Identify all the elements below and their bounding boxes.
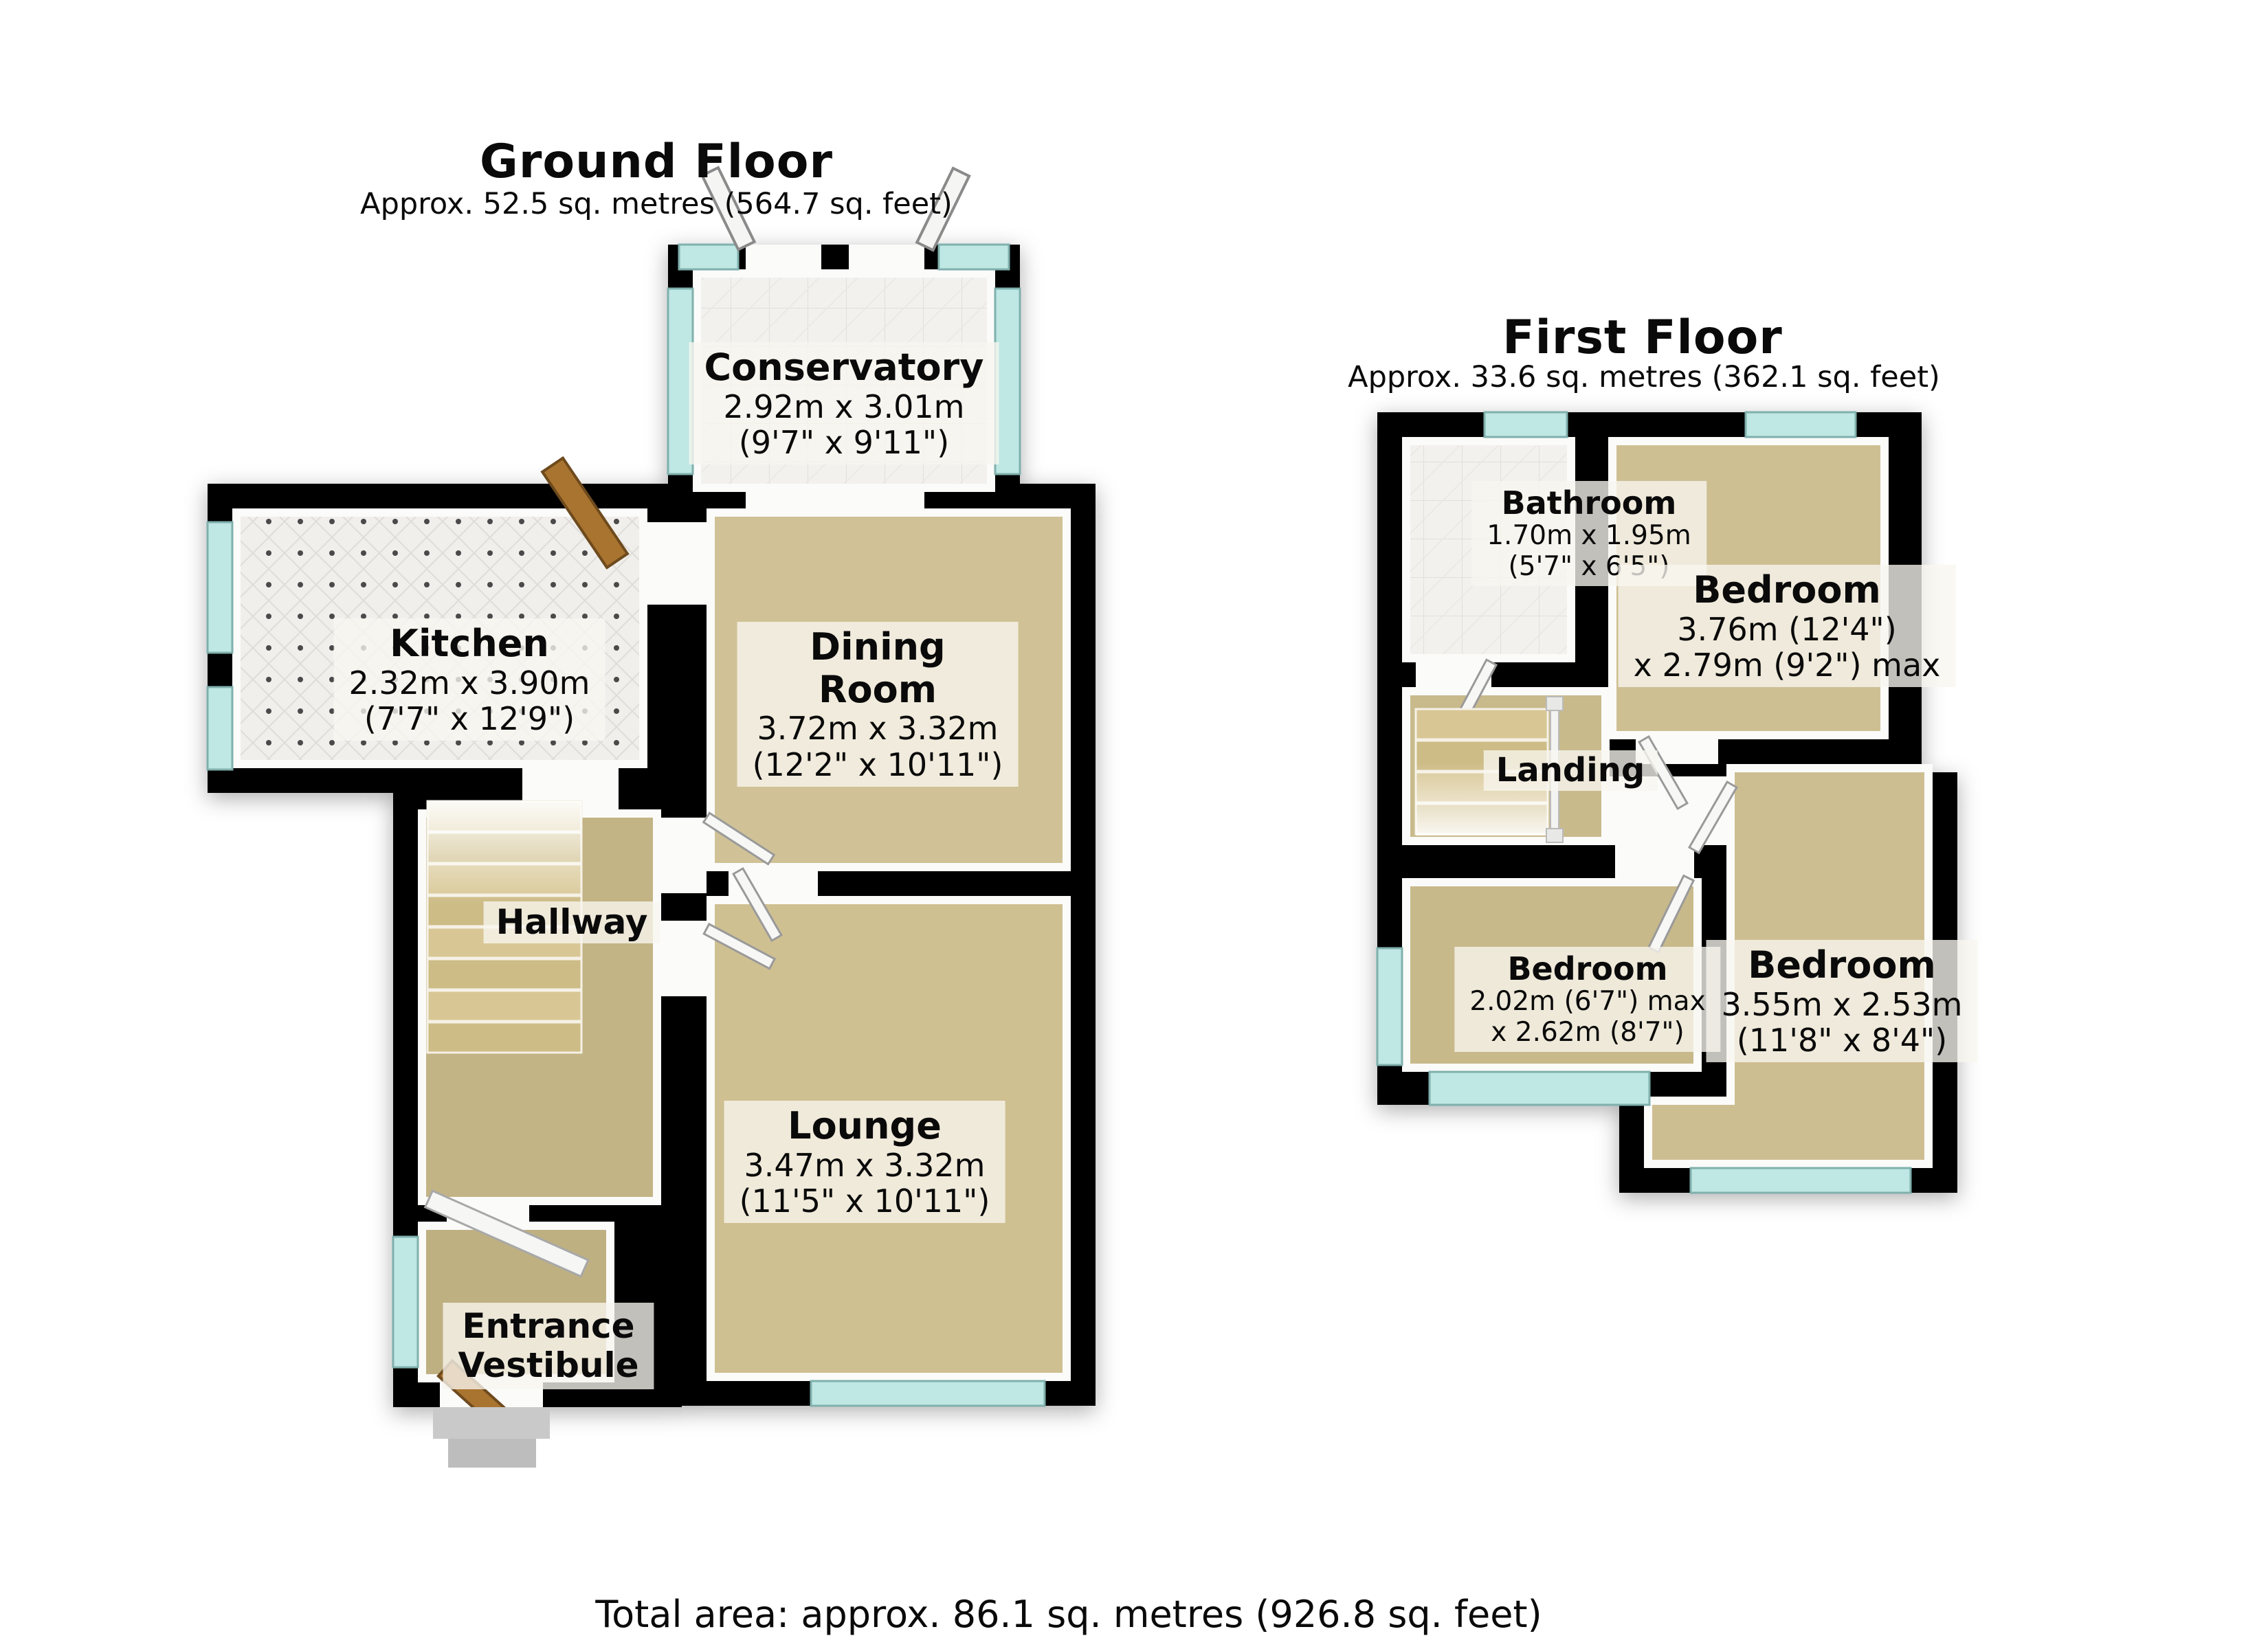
lounge-dims-metric: 3.47m x 3.32m <box>740 1147 990 1183</box>
kitchen-label: Kitchen 2.32m x 3.90m (7'7" x 12'9") <box>334 618 605 741</box>
ground-floor-title: Ground Floor <box>480 135 833 189</box>
entrance-vestibule-name-line2: Vestibule <box>458 1346 638 1385</box>
kitchen-window-lower <box>208 687 232 770</box>
entrance-vestibule-label: Entrance Vestibule <box>443 1303 654 1389</box>
dining-room-label: Dining Room 3.72m x 3.32m (12'2" x 10'11… <box>737 622 1019 787</box>
bedroom-front-label: Bedroom 3.55m x 2.53m (11'8" x 8'4") <box>1706 940 1978 1062</box>
conservatory-name: Conservatory <box>704 346 984 389</box>
front-steps <box>433 1407 550 1468</box>
lounge-window <box>811 1381 1045 1406</box>
vestibule-window <box>393 1237 418 1367</box>
bedroom-front-window <box>1691 1168 1911 1193</box>
kitchen-window-upper <box>208 522 232 653</box>
bedroom-rear-dims-line1: 3.76m (12'4") <box>1634 612 1941 647</box>
bedroom-rear-name: Bedroom <box>1634 569 1941 612</box>
bedroom-front-name: Bedroom <box>1722 944 1963 987</box>
conservatory-window-top-right <box>939 245 1009 269</box>
bedroom-small-dims-line2: x 2.62m (8'7") <box>1469 1018 1705 1048</box>
dining-room-name-line2: Room <box>753 669 1003 711</box>
dining-room-name-line1: Dining <box>753 626 1003 669</box>
landing-name: Landing <box>1496 752 1645 789</box>
bedroom-front-dims-metric: 3.55m x 2.53m <box>1722 987 1963 1022</box>
lounge-name: Lounge <box>740 1105 990 1147</box>
bedroom-rear-window <box>1746 412 1856 437</box>
floorplan-page: Ground Floor Approx. 52.5 sq. metres (56… <box>0 0 2268 1649</box>
landing-label: Landing <box>1484 750 1658 791</box>
kitchen-name: Kitchen <box>349 622 590 665</box>
ground-floor-subtitle: Approx. 52.5 sq. metres (564.7 sq. feet) <box>360 187 953 221</box>
bathroom-name: Bathroom <box>1487 485 1691 521</box>
conservatory-dims-metric: 2.92m x 3.01m <box>704 389 984 425</box>
dining-room-dims-metric: 3.72m x 3.32m <box>753 710 1003 746</box>
conservatory-label: Conservatory 2.92m x 3.01m (9'7" x 9'11"… <box>689 342 999 464</box>
hallway-label: Hallway <box>484 901 660 943</box>
lounge-dims-imperial: (11'5" x 10'11") <box>740 1183 990 1219</box>
floorplan-graphic <box>0 0 2268 1649</box>
first-floor-title: First Floor <box>1502 311 1783 365</box>
conservatory-dims-imperial: (9'7" x 9'11") <box>704 425 984 460</box>
first-floor-subtitle: Approx. 33.6 sq. metres (362.1 sq. feet) <box>1348 360 1940 394</box>
bedroom-rear-label: Bedroom 3.76m (12'4") x 2.79m (9'2") max <box>1619 565 1956 687</box>
entrance-vestibule-name-line1: Entrance <box>458 1307 638 1346</box>
dining-room-dims-imperial: (12'2" x 10'11") <box>753 747 1003 783</box>
bedroom-small-window <box>1430 1072 1649 1105</box>
bathroom-window <box>1485 412 1567 437</box>
conservatory-window-top-left <box>679 245 738 269</box>
kitchen-dims-imperial: (7'7" x 12'9") <box>349 701 590 737</box>
hallway-name: Hallway <box>496 903 648 942</box>
stairs-side-window <box>1377 948 1402 1065</box>
kitchen-dims-metric: 2.32m x 3.90m <box>349 665 590 701</box>
bedroom-small-dims-line1: 2.02m (6'7") max <box>1469 987 1705 1017</box>
bedroom-front-dims-imperial: (11'8" x 8'4") <box>1722 1022 1963 1058</box>
bedroom-small-name: Bedroom <box>1469 951 1705 987</box>
lounge-label: Lounge 3.47m x 3.32m (11'5" x 10'11") <box>724 1101 1005 1223</box>
bathroom-dims-metric: 1.70m x 1.95m <box>1487 521 1691 551</box>
bedroom-rear-dims-line2: x 2.79m (9'2") max <box>1634 647 1941 683</box>
total-area-text: Total area: approx. 86.1 sq. metres (926… <box>595 1593 1542 1636</box>
bedroom-small-label: Bedroom 2.02m (6'7") max x 2.62m (8'7") <box>1454 947 1720 1052</box>
